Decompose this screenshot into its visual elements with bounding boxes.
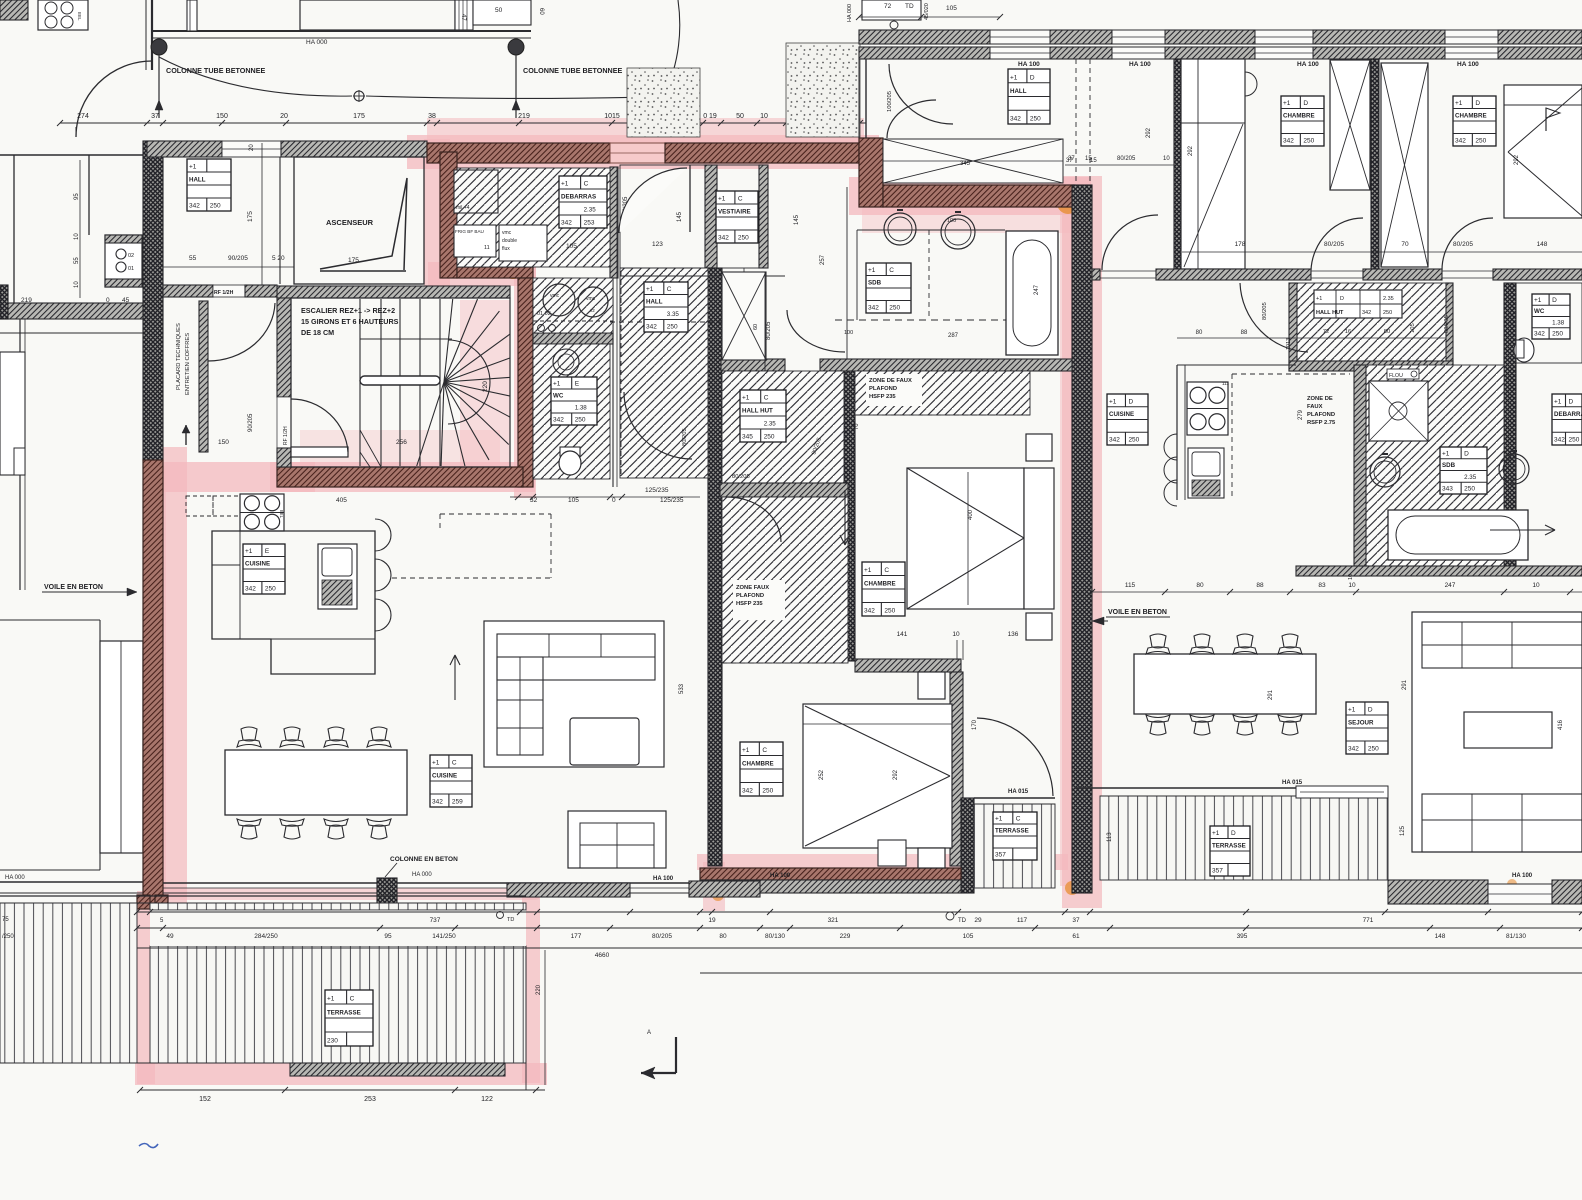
svg-text:C: C xyxy=(889,267,894,274)
svg-text:284/250: 284/250 xyxy=(254,933,278,940)
svg-text:100: 100 xyxy=(947,218,956,224)
svg-text:100: 100 xyxy=(844,330,853,336)
svg-text:v2: v2 xyxy=(590,308,595,313)
svg-text:C: C xyxy=(764,395,769,402)
svg-text:vmc: vmc xyxy=(502,230,512,236)
svg-text:250: 250 xyxy=(1128,437,1139,444)
svg-text:HALL HUT: HALL HUT xyxy=(742,408,773,415)
svg-text:+1: +1 xyxy=(1534,297,1542,304)
svg-text:+1: +1 xyxy=(864,567,872,574)
svg-text:TERRASSE: TERRASSE xyxy=(1212,843,1246,850)
svg-text:HA 000: HA 000 xyxy=(306,39,328,46)
svg-text:TERRASSE: TERRASSE xyxy=(327,1010,361,1017)
svg-text:113: 113 xyxy=(1107,832,1113,842)
svg-text:219: 219 xyxy=(518,113,530,120)
svg-text:178: 178 xyxy=(1235,241,1246,248)
svg-text:FRIG BF BAU: FRIG BF BAU xyxy=(455,229,484,234)
svg-text:342: 342 xyxy=(1109,437,1120,444)
svg-text:01: 01 xyxy=(128,266,134,272)
svg-text:0: 0 xyxy=(612,497,616,504)
svg-text:ZONE DE: ZONE DE xyxy=(1307,396,1333,402)
svg-text:80/130: 80/130 xyxy=(765,933,785,940)
svg-text:/250: /250 xyxy=(2,934,14,940)
svg-text:175: 175 xyxy=(247,211,254,222)
svg-text:CHAMBRE: CHAMBRE xyxy=(1455,113,1487,120)
svg-text:HALL: HALL xyxy=(189,177,206,184)
svg-text:1015: 1015 xyxy=(604,113,620,120)
svg-text:292: 292 xyxy=(1514,154,1520,165)
svg-text:38: 38 xyxy=(428,113,436,120)
svg-text:533: 533 xyxy=(679,683,685,694)
svg-text:342: 342 xyxy=(1362,310,1371,316)
svg-text:395: 395 xyxy=(1237,933,1248,940)
svg-text:1.38: 1.38 xyxy=(575,405,588,412)
svg-text:250: 250 xyxy=(884,608,895,615)
svg-text:WC: WC xyxy=(553,393,564,400)
svg-text:FLOU: FLOU xyxy=(1389,373,1403,379)
svg-text:80/205: 80/205 xyxy=(652,933,672,940)
svg-text:220: 220 xyxy=(482,381,489,392)
svg-text:C: C xyxy=(738,196,743,203)
svg-text:80/205: 80/205 xyxy=(1453,241,1473,248)
svg-text:+1: +1 xyxy=(1212,830,1220,837)
svg-text:88: 88 xyxy=(1241,330,1248,336)
svg-text:C: C xyxy=(350,996,355,1003)
svg-text:3.35: 3.35 xyxy=(667,311,680,318)
svg-text:75: 75 xyxy=(2,917,9,923)
svg-text:342: 342 xyxy=(189,203,200,210)
svg-text:HA 100: HA 100 xyxy=(1018,61,1040,68)
svg-text:287: 287 xyxy=(948,333,959,339)
svg-text:247: 247 xyxy=(1445,582,1456,589)
svg-text:150: 150 xyxy=(216,113,228,120)
svg-text:HA 100: HA 100 xyxy=(653,876,674,882)
svg-text:37: 37 xyxy=(151,113,159,120)
svg-text:ZONE FAUX: ZONE FAUX xyxy=(736,585,769,591)
svg-text:E: E xyxy=(265,548,270,555)
svg-text:95: 95 xyxy=(384,933,392,940)
svg-text:105: 105 xyxy=(963,933,974,940)
svg-text:141: 141 xyxy=(897,631,908,638)
svg-text:342: 342 xyxy=(1455,138,1466,145)
svg-text:CHAMBRE: CHAMBRE xyxy=(1283,113,1315,120)
svg-text:50: 50 xyxy=(736,113,744,120)
svg-text:100/205: 100/205 xyxy=(887,91,893,112)
svg-text:0 19: 0 19 xyxy=(703,113,717,120)
svg-text:250: 250 xyxy=(575,417,586,424)
svg-text:CUISINE: CUISINE xyxy=(245,561,270,568)
svg-text:274: 274 xyxy=(77,113,89,120)
svg-text:mil +4: mil +4 xyxy=(456,205,470,211)
svg-text:342: 342 xyxy=(864,608,875,615)
svg-text:80/205: 80/205 xyxy=(732,474,750,480)
svg-text:10: 10 xyxy=(1163,156,1170,162)
svg-text:80/205: 80/205 xyxy=(1262,302,1268,320)
svg-text:90/205: 90/205 xyxy=(228,255,248,262)
svg-text:250: 250 xyxy=(667,324,678,331)
svg-text:279: 279 xyxy=(1298,409,1304,420)
svg-text:32: 32 xyxy=(530,497,538,504)
svg-text:250: 250 xyxy=(1569,437,1580,444)
svg-text:HA 100: HA 100 xyxy=(1512,873,1533,879)
svg-text:C: C xyxy=(584,181,589,188)
svg-text:342: 342 xyxy=(1010,116,1021,123)
svg-text:400: 400 xyxy=(968,509,974,520)
svg-text:145: 145 xyxy=(677,211,683,222)
svg-text:+1: +1 xyxy=(1109,398,1117,405)
svg-text:342: 342 xyxy=(1283,138,1294,145)
svg-text:D: D xyxy=(1340,296,1344,302)
svg-text:+1: +1 xyxy=(1455,100,1463,107)
svg-text:95: 95 xyxy=(74,193,80,200)
svg-text:DEBARRAS: DEBARRAS xyxy=(1554,411,1582,418)
svg-text:250: 250 xyxy=(1475,138,1486,145)
svg-text:20: 20 xyxy=(280,113,288,120)
svg-text:250: 250 xyxy=(1368,746,1379,753)
svg-text:250: 250 xyxy=(210,203,221,210)
svg-text:+1: +1 xyxy=(1010,74,1018,81)
svg-text:5 20: 5 20 xyxy=(272,255,285,262)
svg-text:+1: +1 xyxy=(742,747,750,754)
svg-text:405: 405 xyxy=(336,497,347,504)
svg-text:RF 1/2H: RF 1/2H xyxy=(283,426,289,445)
svg-text:15 GIRONS ET 6 HAUTEURS: 15 GIRONS ET 6 HAUTEURS xyxy=(301,317,399,326)
svg-text:50: 50 xyxy=(495,7,503,14)
svg-text:250: 250 xyxy=(889,305,900,312)
svg-text:VESTIAIRE: VESTIAIRE xyxy=(718,209,751,216)
svg-text:RSFP 2.75: RSFP 2.75 xyxy=(1307,420,1336,426)
svg-text:291: 291 xyxy=(1268,689,1274,700)
svg-text:+1: +1 xyxy=(327,996,335,1003)
svg-text:357: 357 xyxy=(995,852,1006,859)
svg-text:342: 342 xyxy=(742,788,753,795)
svg-text:83: 83 xyxy=(1318,582,1326,589)
svg-text:177: 177 xyxy=(571,933,582,940)
svg-text:A: A xyxy=(647,1030,651,1036)
svg-text:252: 252 xyxy=(819,769,825,780)
svg-text:+1: +1 xyxy=(553,381,561,388)
svg-text:PLAFOND: PLAFOND xyxy=(869,386,897,392)
svg-text:80: 80 xyxy=(1196,582,1204,589)
svg-text:230: 230 xyxy=(327,1038,338,1045)
svg-text:47: 47 xyxy=(460,14,466,21)
svg-text:C: C xyxy=(1016,816,1021,823)
svg-text:10: 10 xyxy=(1348,574,1354,580)
svg-text:C: C xyxy=(884,567,889,574)
svg-text:TERRASSE: TERRASSE xyxy=(995,828,1029,835)
svg-text:HA 100: HA 100 xyxy=(1297,61,1319,68)
svg-text:HA 000: HA 000 xyxy=(5,875,25,881)
svg-text:250: 250 xyxy=(1464,486,1475,493)
svg-text:D: D xyxy=(1569,398,1574,405)
svg-text:D: D xyxy=(1128,398,1133,405)
svg-text:CUISINE: CUISINE xyxy=(432,773,457,780)
svg-text:105: 105 xyxy=(946,5,957,12)
svg-text:02: 02 xyxy=(128,253,134,259)
svg-text:CUISINE: CUISINE xyxy=(1109,411,1134,418)
svg-text:125/235: 125/235 xyxy=(645,487,669,494)
svg-text:148: 148 xyxy=(1537,241,1548,248)
svg-text:vmc: vmc xyxy=(550,293,560,299)
svg-text:2.35: 2.35 xyxy=(1383,296,1394,302)
svg-text:150: 150 xyxy=(218,439,229,446)
svg-text:253: 253 xyxy=(584,220,595,227)
svg-text:D: D xyxy=(1475,100,1480,107)
svg-text:80/205: 80/205 xyxy=(766,321,772,340)
svg-text:72: 72 xyxy=(1323,329,1329,335)
svg-text:10: 10 xyxy=(1348,582,1356,589)
svg-text:45/020: 45/020 xyxy=(924,3,930,20)
svg-text:90/205: 90/205 xyxy=(248,413,254,432)
svg-text:CHAMBRE: CHAMBRE xyxy=(742,761,774,768)
svg-text:HA 000: HA 000 xyxy=(412,872,432,878)
svg-text:737: 737 xyxy=(430,917,441,924)
svg-text:HA 015: HA 015 xyxy=(1282,780,1303,786)
svg-text:342: 342 xyxy=(1348,746,1359,753)
svg-text:292: 292 xyxy=(893,769,899,780)
svg-text:HA 015: HA 015 xyxy=(1008,789,1029,795)
svg-text:double: double xyxy=(502,238,517,244)
svg-text:PLACARD TECHNIQUES: PLACARD TECHNIQUES xyxy=(176,323,182,390)
svg-text:250: 250 xyxy=(762,788,773,795)
svg-text:D: D xyxy=(1030,74,1035,81)
svg-text:+1: +1 xyxy=(1316,296,1322,302)
svg-text:DE 18 CM: DE 18 CM xyxy=(301,328,334,337)
svg-text:55: 55 xyxy=(189,255,197,262)
svg-text:TD: TD xyxy=(958,918,967,924)
svg-text:HSFP 235: HSFP 235 xyxy=(736,601,763,607)
svg-text:D: D xyxy=(1303,100,1308,107)
svg-text:105: 105 xyxy=(566,243,577,250)
svg-text:11: 11 xyxy=(484,245,490,251)
svg-text:80/205: 80/205 xyxy=(1117,156,1136,162)
svg-text:ZONE DE FAUX: ZONE DE FAUX xyxy=(869,378,912,384)
svg-text:292: 292 xyxy=(1146,127,1152,138)
svg-text:DEBARRAS: DEBARRAS xyxy=(561,194,596,201)
svg-text:343: 343 xyxy=(1442,486,1453,493)
svg-text:+1: +1 xyxy=(1442,450,1450,457)
svg-text:115: 115 xyxy=(1125,582,1136,589)
svg-text:16: 16 xyxy=(1345,329,1351,335)
svg-text:HA 100: HA 100 xyxy=(1129,61,1151,68)
svg-text:PLAFOND: PLAFOND xyxy=(736,593,764,599)
svg-text:+1: +1 xyxy=(1348,707,1356,714)
svg-text:72: 72 xyxy=(884,3,892,10)
svg-text:342: 342 xyxy=(432,799,443,806)
svg-text:HALL: HALL xyxy=(646,299,663,306)
svg-text:342: 342 xyxy=(1554,437,1565,444)
svg-text:ASCENSEUR: ASCENSEUR xyxy=(326,218,374,227)
svg-text:175: 175 xyxy=(348,257,359,264)
svg-text:250: 250 xyxy=(1383,310,1392,316)
svg-text:4660: 4660 xyxy=(595,952,610,959)
svg-text:1.38: 1.38 xyxy=(1552,319,1565,326)
svg-text:125: 125 xyxy=(1400,825,1406,836)
svg-text:VOILE EN BETON: VOILE EN BETON xyxy=(1108,609,1167,616)
svg-text:RF 1/2H: RF 1/2H xyxy=(214,290,234,296)
svg-text:10: 10 xyxy=(760,113,768,120)
svg-text:125/235: 125/235 xyxy=(660,497,684,504)
svg-text:TD: TD xyxy=(507,917,514,923)
svg-text:SDB: SDB xyxy=(868,280,882,287)
svg-text:250: 250 xyxy=(738,235,749,242)
svg-text:+1: +1 xyxy=(742,395,750,402)
svg-text:CHAMBRE: CHAMBRE xyxy=(864,581,896,588)
svg-text:+1: +1 xyxy=(868,267,876,274)
svg-text:+1: +1 xyxy=(189,164,197,171)
svg-text:148: 148 xyxy=(1435,933,1446,940)
svg-text:123: 123 xyxy=(652,241,663,248)
svg-text:175: 175 xyxy=(353,113,365,120)
svg-text:2.35: 2.35 xyxy=(764,421,777,428)
svg-text:10: 10 xyxy=(74,233,80,240)
svg-text:342: 342 xyxy=(1534,331,1545,338)
svg-text:HALL: HALL xyxy=(1010,88,1027,95)
svg-text:357: 357 xyxy=(1212,868,1223,875)
svg-text:10: 10 xyxy=(74,281,80,288)
svg-text:HA 000: HA 000 xyxy=(847,4,853,22)
svg-text:+1: +1 xyxy=(995,816,1003,823)
svg-text:345: 345 xyxy=(960,161,971,167)
svg-text:49: 49 xyxy=(166,933,174,940)
svg-text:37: 37 xyxy=(1072,917,1080,924)
svg-text:60: 60 xyxy=(753,324,759,330)
svg-text:81/130: 81/130 xyxy=(1506,933,1526,940)
svg-text:342: 342 xyxy=(646,324,657,331)
svg-text:259: 259 xyxy=(452,799,463,806)
svg-text:WC: WC xyxy=(1534,308,1545,315)
svg-text:VOILE EN BETON: VOILE EN BETON xyxy=(44,584,103,591)
svg-text:250: 250 xyxy=(764,434,775,441)
svg-text:152: 152 xyxy=(199,1096,211,1103)
svg-text:416: 416 xyxy=(1558,719,1564,730)
svg-text:EEL: EEL xyxy=(77,12,82,21)
svg-text:55: 55 xyxy=(74,257,80,264)
svg-text:111: 111 xyxy=(1222,381,1229,386)
svg-text:D: D xyxy=(1464,450,1469,457)
svg-text:C: C xyxy=(452,760,457,767)
svg-text:+1: +1 xyxy=(432,760,440,767)
svg-text:37: 37 xyxy=(1068,156,1075,162)
svg-text:145: 145 xyxy=(794,214,800,225)
svg-text:D: D xyxy=(1368,707,1373,714)
svg-text:C: C xyxy=(667,286,672,293)
svg-text:256: 256 xyxy=(396,439,407,446)
svg-text:70: 70 xyxy=(1401,241,1409,248)
svg-text:01 02: 01 02 xyxy=(537,311,551,317)
svg-text:342: 342 xyxy=(245,586,256,593)
svg-text:80: 80 xyxy=(719,933,727,940)
svg-text:250: 250 xyxy=(265,586,276,593)
svg-text:321: 321 xyxy=(828,917,839,924)
svg-text:FAUX: FAUX xyxy=(1307,404,1323,410)
svg-text:220: 220 xyxy=(536,984,542,995)
svg-text:HALL HUT: HALL HUT xyxy=(1316,310,1344,316)
svg-text:2.35: 2.35 xyxy=(584,207,597,214)
svg-text:ENTRETIEN COFFRES: ENTRETIEN COFFRES xyxy=(185,333,191,395)
svg-text:+1: +1 xyxy=(718,196,726,203)
svg-text:TD: TD xyxy=(905,3,914,10)
svg-text:250: 250 xyxy=(1552,331,1563,338)
svg-text:70: 70 xyxy=(854,424,860,430)
svg-text:EEL: EEL xyxy=(279,510,284,519)
svg-text:flux: flux xyxy=(502,246,510,252)
svg-text:80/205: 80/205 xyxy=(1444,315,1450,333)
svg-text:10: 10 xyxy=(1532,582,1540,589)
svg-text:136: 136 xyxy=(1008,631,1019,638)
svg-text:170: 170 xyxy=(972,719,978,730)
svg-text:+1: +1 xyxy=(646,286,654,293)
svg-text:80/205: 80/205 xyxy=(1324,241,1344,248)
svg-text:SDB: SDB xyxy=(1442,462,1456,469)
svg-text:SEJOUR: SEJOUR xyxy=(1348,720,1374,727)
svg-text:105: 105 xyxy=(1410,323,1416,333)
svg-text:D: D xyxy=(1231,830,1236,837)
svg-text:29: 29 xyxy=(974,917,982,924)
svg-text:HA 100: HA 100 xyxy=(1457,61,1479,68)
svg-text:HA 100: HA 100 xyxy=(770,873,791,879)
svg-text:2.35: 2.35 xyxy=(1464,474,1477,481)
svg-text:+1: +1 xyxy=(1283,100,1291,107)
svg-text:COLONNE EN BETON: COLONNE EN BETON xyxy=(390,856,458,863)
svg-text:vmc: vmc xyxy=(586,296,596,302)
svg-text:342: 342 xyxy=(561,220,572,227)
svg-text:88: 88 xyxy=(1256,582,1264,589)
svg-text:61: 61 xyxy=(1072,933,1080,940)
svg-text:342: 342 xyxy=(868,305,879,312)
svg-text:122: 122 xyxy=(481,1096,493,1103)
svg-text:60: 60 xyxy=(538,8,544,15)
svg-text:+1: +1 xyxy=(1554,398,1562,405)
svg-text:19: 19 xyxy=(708,917,716,924)
svg-text:80: 80 xyxy=(1384,329,1390,335)
svg-text:141/250: 141/250 xyxy=(432,933,456,940)
svg-text:HSFP 235: HSFP 235 xyxy=(869,394,896,400)
svg-text:342: 342 xyxy=(718,235,729,242)
svg-text:250: 250 xyxy=(1030,116,1041,123)
svg-text:291: 291 xyxy=(1402,679,1408,690)
svg-text:117: 117 xyxy=(1017,917,1028,924)
svg-text:E: E xyxy=(575,381,580,388)
svg-text:292: 292 xyxy=(1188,145,1194,156)
svg-text:10: 10 xyxy=(952,631,960,638)
svg-text:345: 345 xyxy=(742,434,753,441)
svg-text:15: 15 xyxy=(1085,156,1092,162)
svg-text:257: 257 xyxy=(820,254,826,265)
svg-text:80/205: 80/205 xyxy=(682,428,688,446)
svg-text:342: 342 xyxy=(553,417,564,424)
svg-text:105: 105 xyxy=(568,497,579,504)
svg-text:253: 253 xyxy=(364,1096,376,1103)
svg-text:250: 250 xyxy=(1303,138,1314,145)
svg-text:D: D xyxy=(1552,297,1557,304)
svg-text:20: 20 xyxy=(249,144,255,151)
svg-text:PLAFOND: PLAFOND xyxy=(1307,412,1335,418)
svg-text:+1: +1 xyxy=(561,181,569,188)
svg-text:247: 247 xyxy=(1034,284,1040,295)
svg-text:229: 229 xyxy=(840,933,851,940)
svg-text:+1: +1 xyxy=(245,548,253,555)
svg-text:C: C xyxy=(762,747,767,754)
svg-text:771: 771 xyxy=(1363,917,1374,924)
svg-text:80: 80 xyxy=(1196,330,1203,336)
svg-text:COLONNE TUBE BETONNEE: COLONNE TUBE BETONNEE xyxy=(523,66,623,75)
